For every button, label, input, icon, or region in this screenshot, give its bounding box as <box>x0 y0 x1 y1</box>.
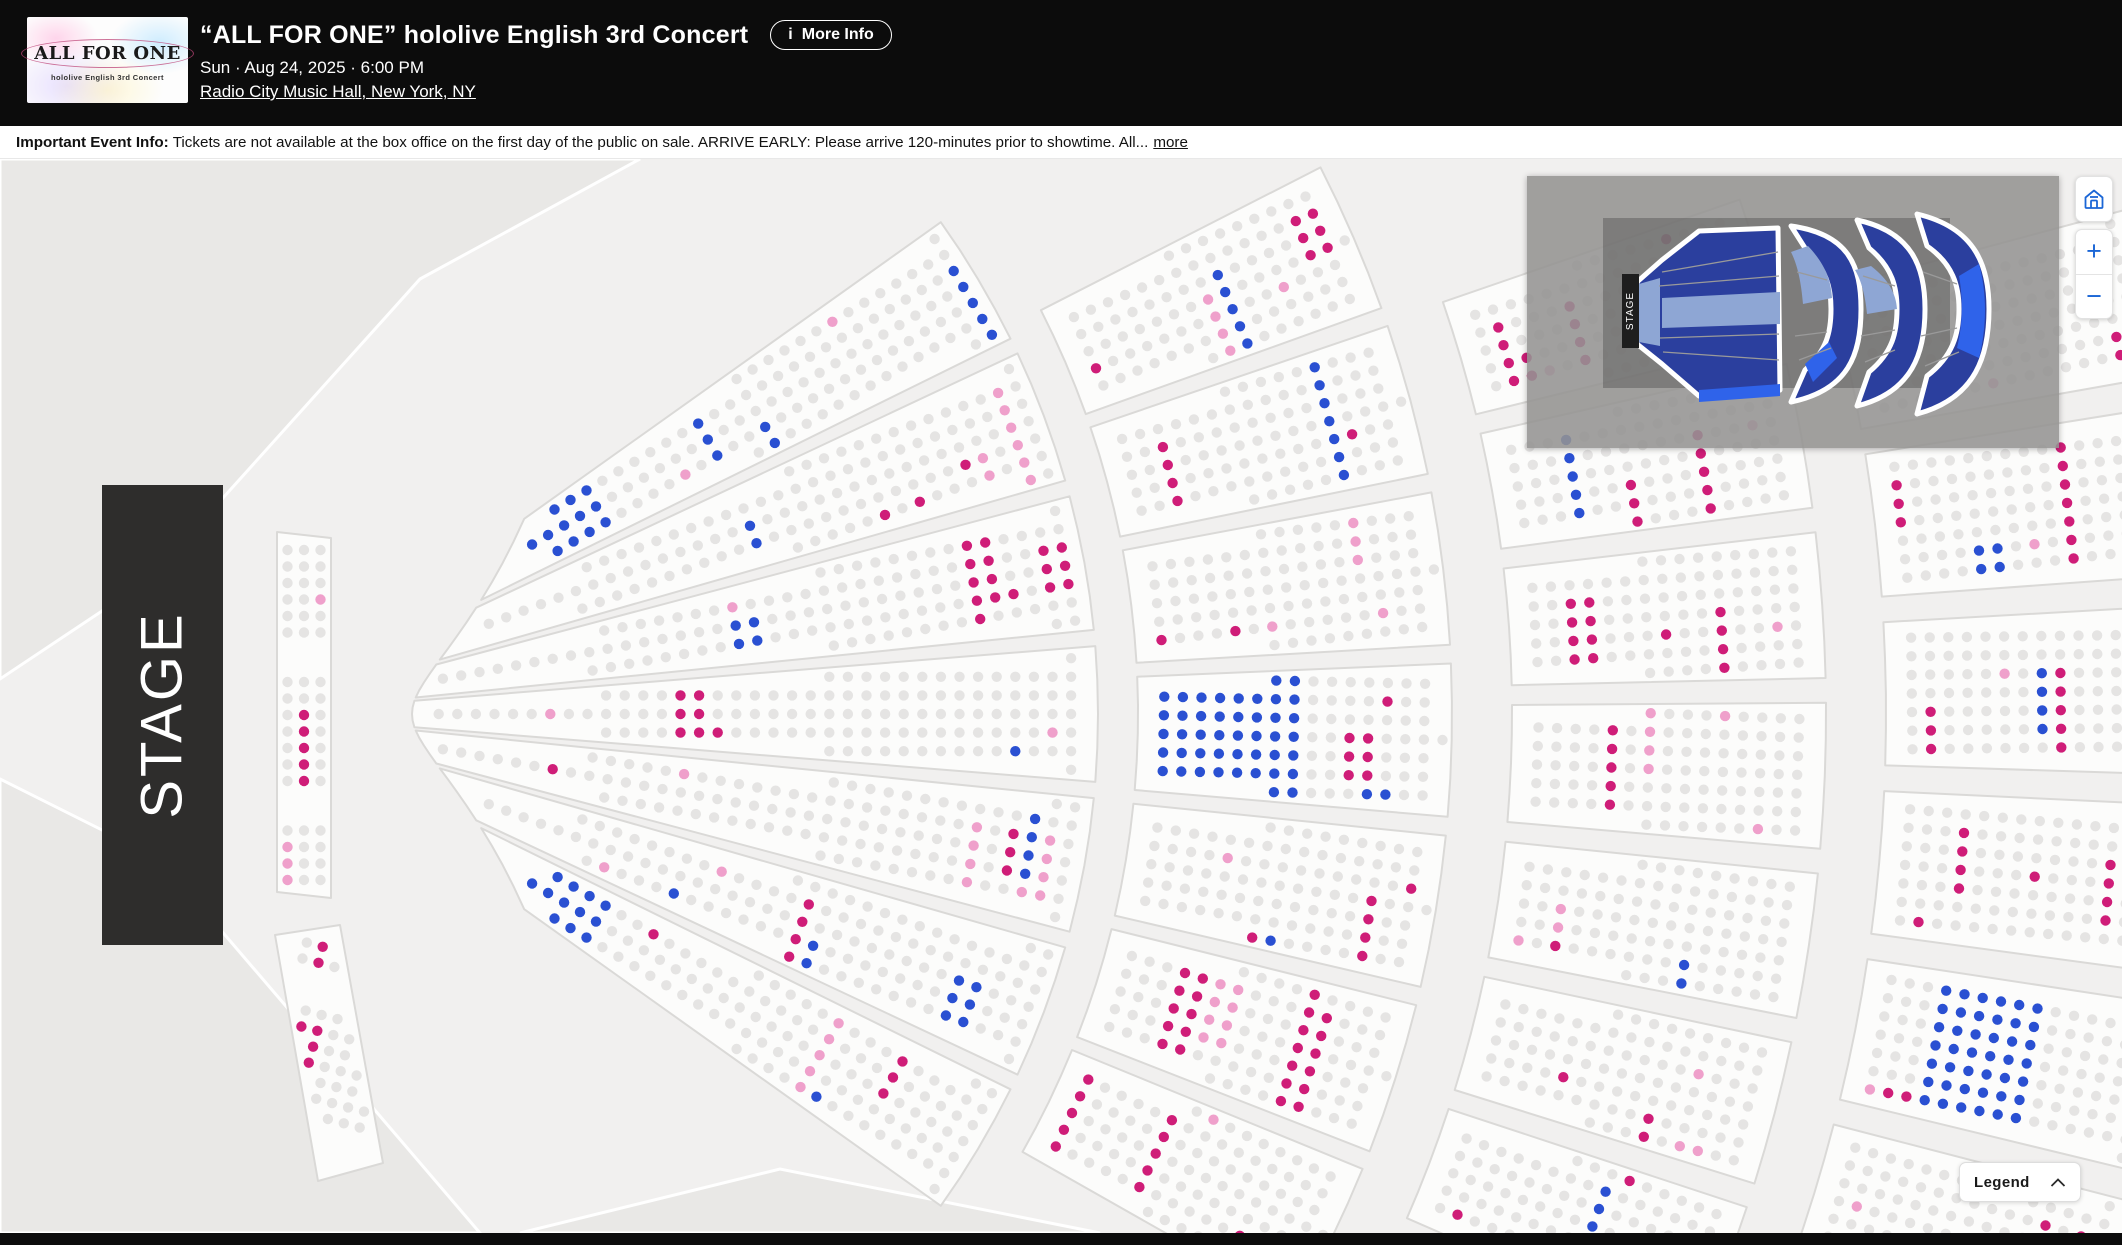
zoom-out-icon: − <box>2086 283 2102 310</box>
minimap-svg: STAGE <box>1527 176 2059 448</box>
zoom-controls: + − <box>2075 229 2113 319</box>
minimap[interactable]: STAGE <box>1527 176 2059 448</box>
event-thumbnail: ALL FOR ONE hololive English 3rd Concert <box>27 17 188 103</box>
stage-label: STAGE <box>130 611 195 818</box>
legend-button[interactable]: Legend <box>1959 1162 2081 1202</box>
chevron-up-icon <box>2050 1178 2066 1187</box>
more-info-label: More Info <box>802 26 874 44</box>
minimap-stage-label: STAGE <box>1625 292 1636 330</box>
event-thumbnail-subtitle: hololive English 3rd Concert <box>51 73 164 82</box>
banner-label: Important Event Info: <box>16 134 169 151</box>
seat-map-canvas[interactable]: STAGE <box>0 159 2122 1233</box>
more-link[interactable]: more <box>1153 134 1188 151</box>
zoom-in-icon: + <box>2086 238 2102 265</box>
banner-text: Tickets are not available at the box off… <box>173 134 1149 151</box>
venue-link[interactable]: Radio City Music Hall, New York, NY <box>200 82 476 102</box>
seatmap-page: ALL FOR ONE hololive English 3rd Concert… <box>0 0 2122 1245</box>
reset-view-button[interactable] <box>2075 176 2113 222</box>
footer-bar <box>0 1233 2122 1245</box>
zoom-out-button[interactable]: − <box>2076 275 2112 319</box>
event-header: ALL FOR ONE hololive English 3rd Concert… <box>0 0 2122 126</box>
event-datetime: Sun · Aug 24, 2025 · 6:00 PM <box>200 58 424 78</box>
info-icon: i <box>788 26 792 44</box>
event-title: “ALL FOR ONE” hololive English 3rd Conce… <box>200 21 748 50</box>
more-info-button[interactable]: i More Info <box>770 20 891 50</box>
zoom-in-button[interactable]: + <box>2076 230 2112 274</box>
legend-label: Legend <box>1974 1174 2030 1191</box>
event-thumbnail-title: ALL FOR ONE <box>21 39 194 68</box>
important-event-info-banner: Important Event Info: Tickets are not av… <box>0 126 2122 159</box>
home-icon <box>2081 186 2107 212</box>
